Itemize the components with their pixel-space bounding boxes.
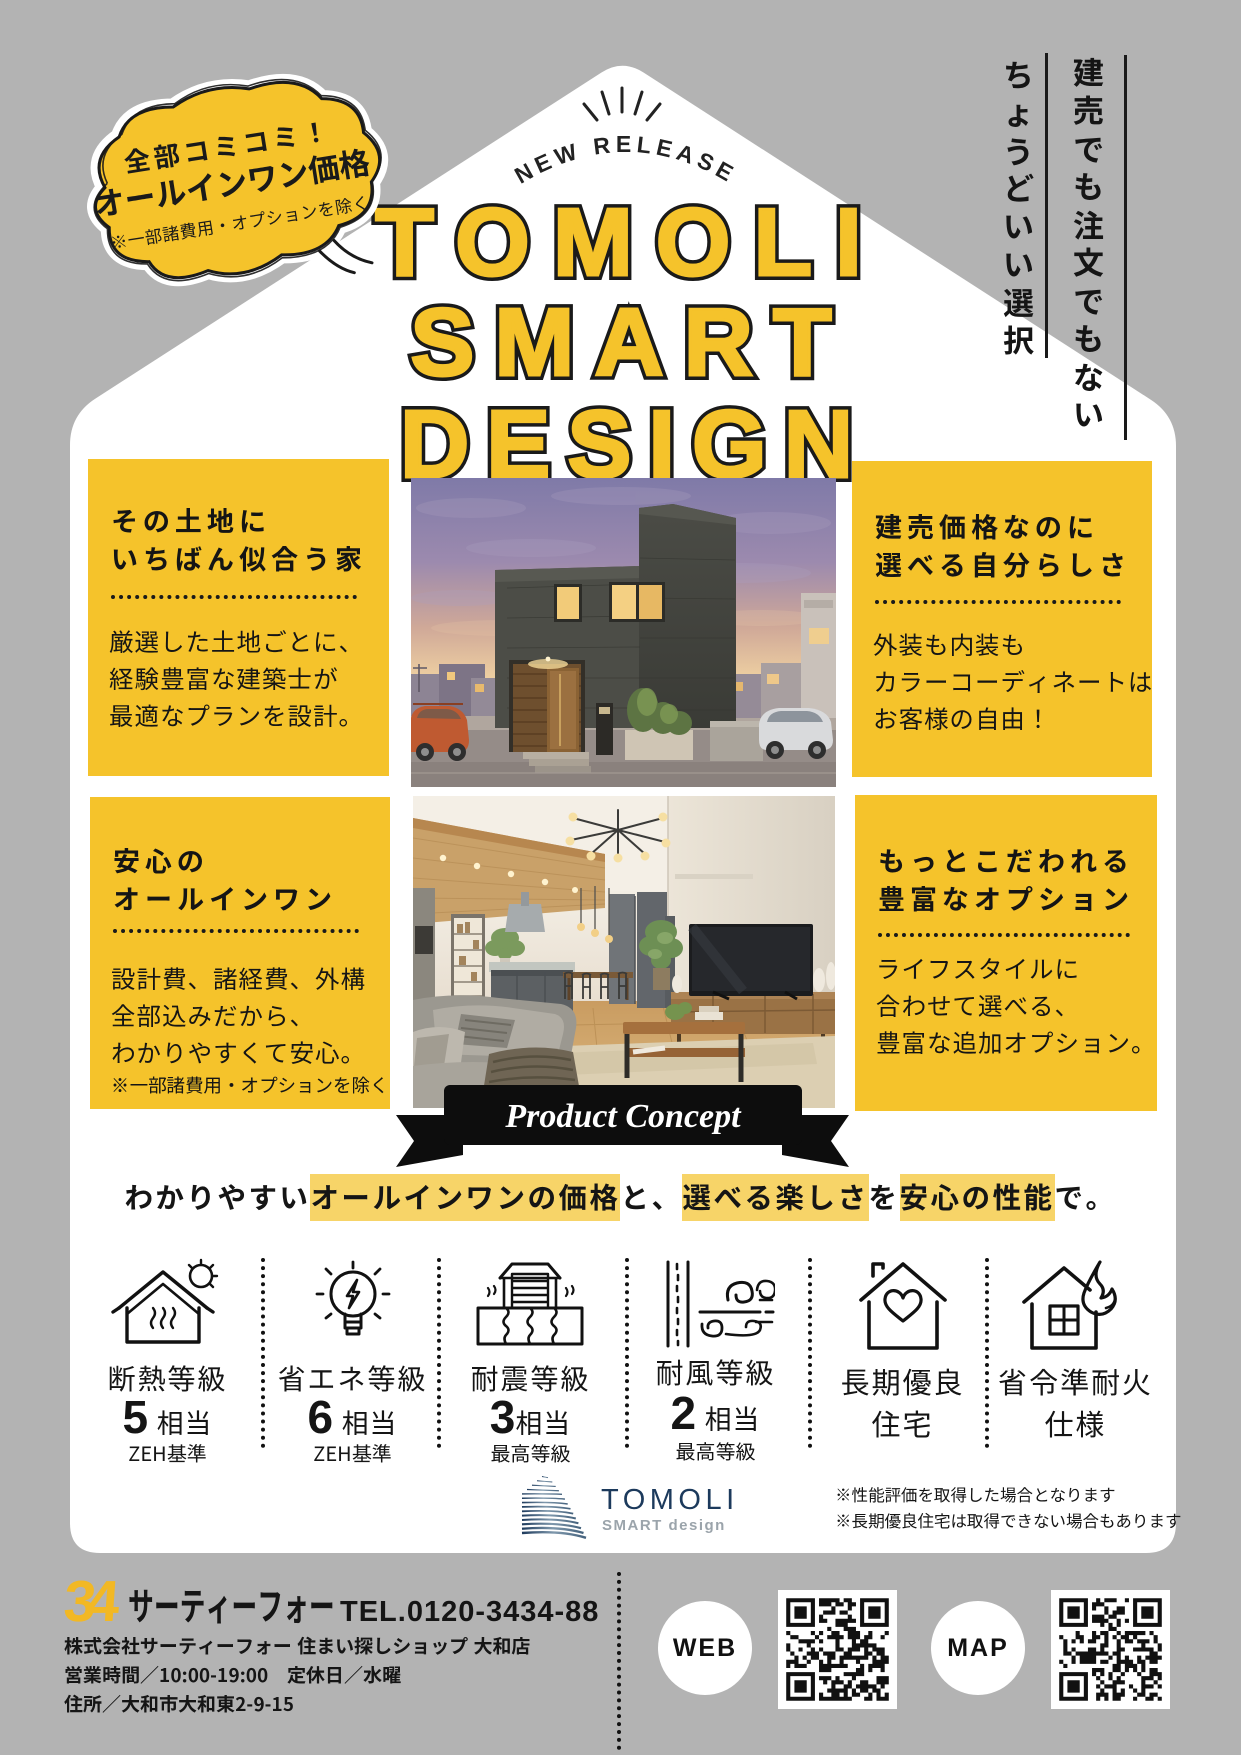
svg-text:Product Concept: Product Concept [504, 1098, 742, 1135]
svg-text:SMART: SMART [410, 289, 851, 396]
svg-text:TOMOLI: TOMOLI [375, 189, 885, 296]
